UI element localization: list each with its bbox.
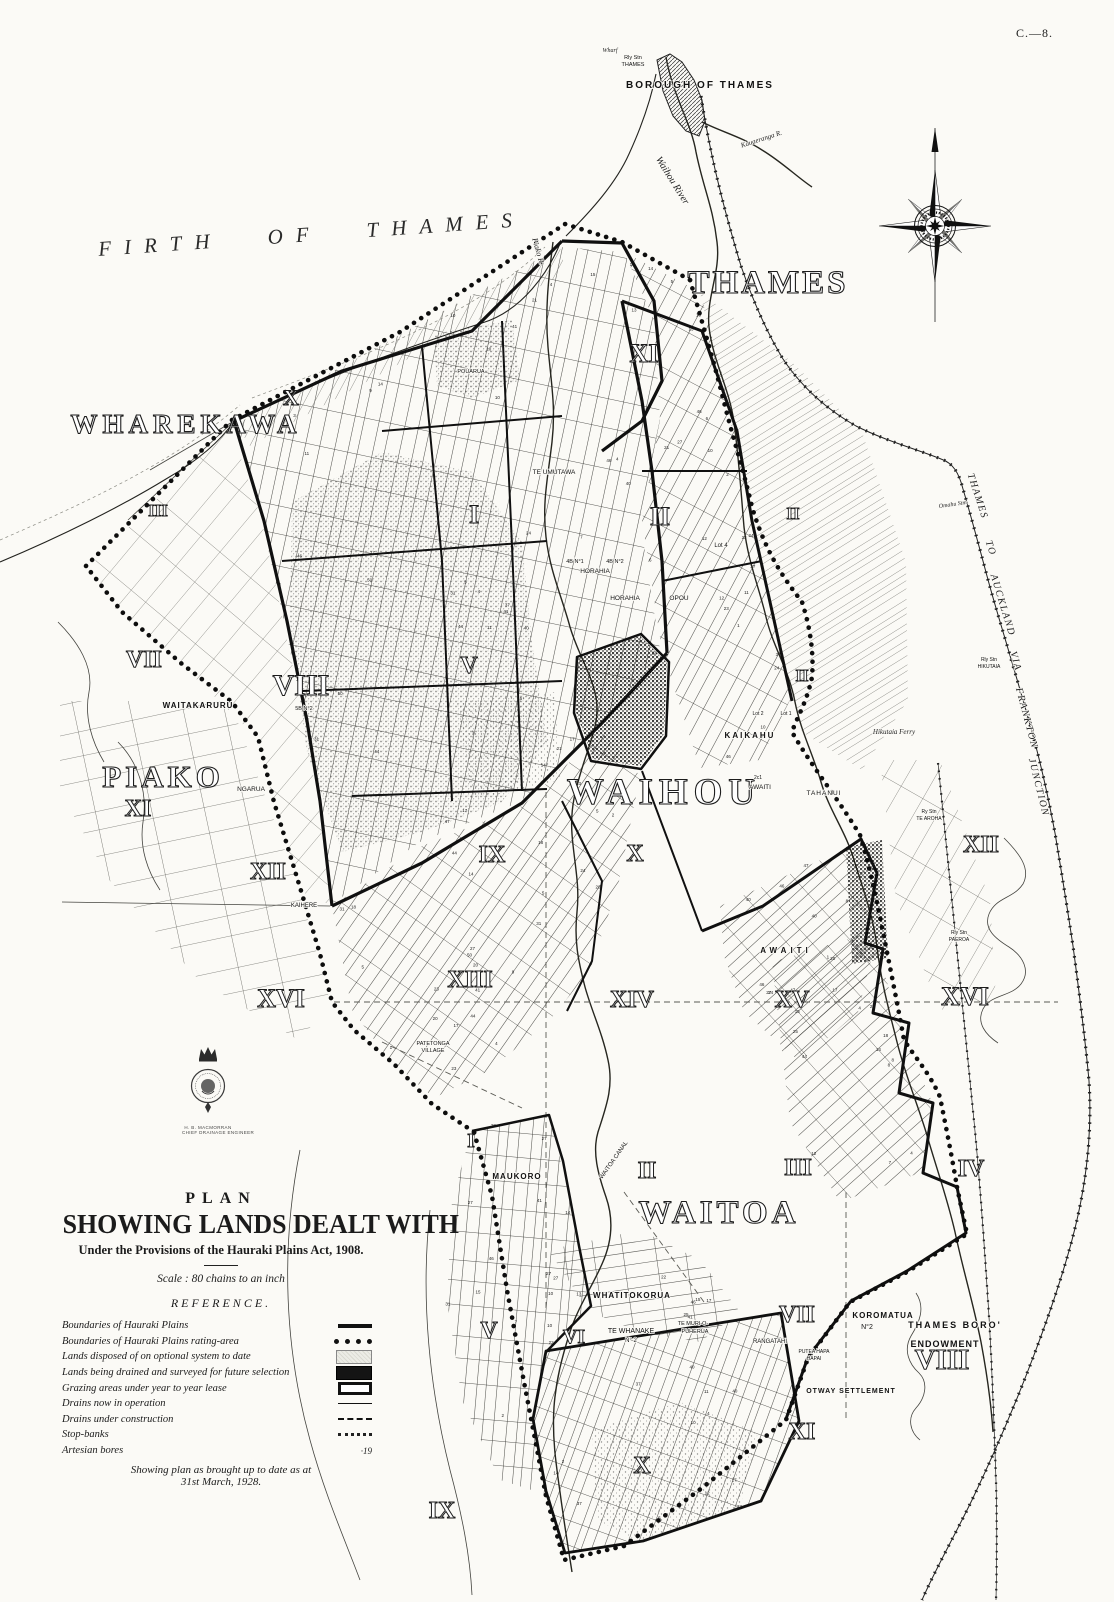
map-subtitle: Under the Provisions of the Hauraki Plai…	[56, 1243, 386, 1258]
parcel-number: 4	[910, 1150, 913, 1155]
parcel-number: 17	[832, 987, 838, 992]
parcel-line	[0, 845, 432, 942]
parcel-line	[0, 275, 192, 716]
map-label: II	[650, 502, 670, 531]
parcel-number: 7	[515, 1319, 518, 1324]
parcel-line	[640, 1020, 877, 1283]
parcel-line	[498, 1082, 537, 1526]
parcel-line	[622, 1037, 859, 1298]
map-label: III	[148, 501, 168, 520]
parcel-number: 11	[487, 625, 492, 630]
map-label: VIA	[1007, 650, 1023, 672]
map-label: X	[633, 1453, 651, 1479]
parcel-number: 4	[858, 1006, 861, 1011]
map-label: RANGATAHI	[753, 1339, 787, 1345]
map-label: Hikutaia Ferry	[872, 728, 916, 736]
official-seal: H. B. MACMORRAN CHIEF DRAINAGE ENGINEER	[182, 1044, 234, 1135]
parcel-line	[708, 934, 971, 1172]
parcel-number: 50	[467, 953, 473, 958]
drain-dashed	[382, 1042, 522, 1108]
map-label: KAIKAHU	[725, 731, 776, 740]
parcel-line	[640, 801, 870, 1006]
parcel-number: 4	[616, 456, 619, 461]
parcel-line	[509, 823, 806, 1247]
parcel-line	[0, 669, 272, 1039]
parcel-line	[699, 596, 1114, 891]
parcel-line	[879, 672, 1114, 827]
map-label: WAITOA	[639, 1195, 800, 1231]
parcel-line	[645, 233, 816, 1038]
parcel-number: 21	[557, 746, 563, 751]
parcel-number: 21	[532, 298, 538, 303]
legend-row: Stop-banks	[56, 1427, 386, 1443]
parcel-line	[714, 942, 977, 1180]
coastline	[566, 74, 656, 236]
parcel-line	[697, 245, 868, 1049]
parcel-number: 18	[883, 1033, 889, 1038]
map-label: XIII	[447, 967, 492, 993]
compass-rose-icon	[879, 128, 991, 322]
parcel-number: 27	[470, 946, 476, 951]
parcel-line	[706, 607, 1114, 903]
parcel-number: 31	[450, 591, 456, 596]
parcel-line	[813, 383, 1086, 896]
crown-seal-icon	[186, 1044, 230, 1120]
map-label: Kauaeranga R.	[739, 129, 783, 150]
parcel-number: 46	[606, 458, 612, 463]
parcel-line	[0, 286, 206, 727]
map-label: II	[786, 504, 800, 523]
map-label: VI	[563, 1326, 585, 1348]
parcel-number: 10	[708, 448, 714, 453]
legend-row: Drains under construction	[56, 1412, 386, 1428]
map-label: V	[480, 1318, 498, 1344]
title-divider	[204, 1265, 238, 1266]
parcel-number: 27	[553, 1275, 559, 1280]
map-label: XVI	[257, 984, 305, 1013]
legend-symbol-stopbank-line	[338, 1433, 372, 1436]
map-label: XVI	[941, 982, 989, 1011]
parcel-line	[428, 163, 904, 458]
map-label: Ry Stn	[921, 809, 936, 815]
map-label: X	[626, 841, 644, 867]
parcel-number: 12	[811, 1151, 817, 1156]
parcel-line	[927, 787, 1085, 1061]
map-label: Omahu Stm	[938, 500, 967, 510]
map-label: FIRTH OF THAMES	[96, 207, 525, 261]
parcel-number: 23	[451, 1066, 457, 1071]
map-label: THAMES	[965, 472, 990, 520]
parcel-number: 5	[542, 890, 545, 895]
legend-label: Boundaries of Hauraki Plains rating-area	[62, 1336, 239, 1347]
stipple-area	[434, 320, 520, 398]
map-label: VII	[779, 1302, 815, 1328]
map-scale: Scale : 80 chains to an inch	[56, 1273, 386, 1285]
title-block: PLAN SHOWING LANDS DEALT WITH Under the …	[56, 1190, 386, 1488]
legend-label: Grazing areas under year to year lease	[62, 1383, 227, 1394]
parcel-line	[754, 986, 1017, 1224]
parcel-line	[249, 132, 448, 507]
legend-label: Drains now in operation	[62, 1398, 166, 1409]
map-label: Lot 4	[714, 543, 728, 549]
parcel-number: 37	[577, 1501, 583, 1506]
parcel-line	[316, 1063, 762, 1101]
parcel-number: 46	[691, 1300, 697, 1305]
map-label: XI	[789, 1419, 816, 1445]
parcel-line	[733, 904, 963, 1112]
sheet-reference: C.—8.	[1016, 26, 1053, 41]
parcel-number: 13	[576, 1291, 582, 1296]
parcel-number: 14	[469, 871, 475, 876]
map-label: MAUKORO	[492, 1172, 541, 1181]
parcel-number: 46	[779, 883, 785, 888]
map-label: Wharf	[603, 47, 619, 54]
map-label: TE MURI-O-	[678, 1321, 709, 1327]
map-label: THAMES	[622, 62, 645, 68]
parcel-number: 11	[304, 451, 309, 456]
parcel-line	[514, 299, 990, 595]
parcel-line	[727, 1143, 764, 1401]
parcel-number: 41	[503, 609, 509, 614]
parcel-number: 17	[570, 736, 576, 741]
parcel-line	[683, 242, 854, 1045]
parcel-line	[692, 1148, 729, 1406]
parcel-number: 21	[664, 445, 670, 450]
parcel-line	[152, 82, 351, 454]
map-label: OPOU	[669, 595, 688, 602]
parcel-line	[455, 204, 931, 501]
parcel-number: 10	[691, 1420, 697, 1425]
map-label: 5B N°2	[295, 706, 313, 712]
parcel-line	[626, 785, 856, 993]
parcel-number: 18	[351, 904, 357, 909]
parcel-number: 2	[726, 472, 729, 477]
parcel-number: 17	[453, 1023, 459, 1028]
parcel-number: 24	[580, 868, 586, 873]
parcel-number: 20	[433, 1016, 439, 1021]
parcel-number: 22	[661, 1275, 667, 1280]
legend-label: Artesian bores	[62, 1445, 123, 1456]
parcel-line	[644, 508, 1114, 803]
parcel-number: 27	[677, 439, 683, 444]
map-label: PUHERUA	[682, 1329, 709, 1335]
legend-row: Boundaries of Hauraki Plains	[56, 1318, 386, 1334]
parcel-line	[0, 891, 442, 989]
footnote-line1: Showing plan as brought up to date as at	[56, 1464, 386, 1476]
parcel-line	[714, 330, 987, 844]
parcel-line	[647, 511, 1114, 809]
parcel-line	[408, 1075, 447, 1519]
parcel-number: 23	[434, 986, 440, 991]
parcel-number: 8	[892, 1058, 895, 1063]
parcel-line	[516, 1282, 776, 1318]
parcel-number: 11	[704, 1389, 709, 1394]
map-label: WHAREKAWA	[70, 409, 301, 439]
parcel-number: 47	[445, 819, 451, 824]
parcel-line	[0, 376, 312, 816]
map-label: HAPAI	[807, 1356, 822, 1362]
legend-symbol-dotted-boundary	[334, 1339, 372, 1344]
parcel-number: 40	[732, 1389, 738, 1394]
river-path	[545, 242, 611, 1572]
map-label: I	[467, 1130, 475, 1152]
parcel-number: 25	[793, 1029, 799, 1034]
map-label: VIII	[273, 669, 330, 702]
parcel-number: 46	[297, 554, 303, 559]
parcel-line	[787, 831, 1060, 988]
map-label: WHATITOKORUA	[593, 1291, 671, 1300]
map-label: ENDOWMENT	[911, 1339, 980, 1349]
map-label: HORAHIA	[580, 568, 610, 575]
parcel-line	[549, 1087, 588, 1531]
parcel-lines	[725, 670, 1114, 1092]
parcel-line	[771, 1004, 1034, 1243]
parcel-line	[660, 235, 831, 1042]
parcel-number: 40	[524, 625, 530, 630]
legend-symbol-dashed-line	[338, 1418, 372, 1420]
parcel-number: 41	[688, 1314, 694, 1319]
map-label: JUNCTION	[1026, 757, 1051, 818]
parcel-number: 12	[705, 1490, 711, 1495]
map-label: HORAHIA	[610, 595, 640, 602]
parcel-number: 46	[697, 409, 703, 414]
parcel-number: 5	[671, 279, 674, 284]
parcel-number: 27	[468, 1200, 474, 1205]
map-label: KOROMATUA	[852, 1311, 913, 1320]
map-label: Waihou River	[653, 155, 691, 207]
parcel-line	[534, 210, 705, 1013]
parcel-line	[415, 1541, 789, 1602]
legend-row: Artesian bores·19	[56, 1443, 386, 1459]
map-label: AWAITI	[760, 946, 812, 955]
parcel-line	[701, 869, 931, 1075]
parcel-number: 40	[812, 913, 818, 918]
parcel-number: 31	[340, 907, 346, 912]
parcel-number: 13	[631, 308, 637, 313]
stipple-area	[457, 692, 560, 800]
footnote-line2: 31st March, 1928.	[56, 1476, 386, 1488]
parcel-line	[0, 853, 773, 1022]
map-label: IV	[958, 1156, 985, 1182]
parcel-line	[498, 1151, 758, 1188]
parcel-number: 1	[827, 955, 830, 960]
parcel-number: 40	[689, 1365, 695, 1370]
map-label: Rly Stn	[981, 657, 997, 663]
parcel-line	[671, 1149, 708, 1411]
parcel-line	[533, 217, 1047, 489]
parcel-number: 2	[562, 1459, 565, 1464]
map-label: IX	[429, 1498, 456, 1524]
parcel-line	[430, 1075, 469, 1521]
parcel-line	[532, 328, 1008, 625]
parcel-number: 37	[636, 1381, 642, 1386]
parcel-number: 14	[648, 266, 654, 271]
parcel-line	[5, 1020, 469, 1121]
parcel-line	[509, 1232, 769, 1270]
legend-label: Stop-banks	[62, 1429, 109, 1440]
parcel-line	[598, 435, 1074, 730]
parcel-line	[681, 906, 944, 1141]
parcel-line	[684, 571, 1114, 869]
parcel-line	[62, 657, 161, 1121]
parcel-line	[708, 325, 981, 840]
seal-caption-title: CHIEF DRAINAGE ENGINEER	[182, 1130, 234, 1135]
parcel-line	[314, 1086, 760, 1127]
parcel-line	[0, 628, 307, 996]
parcel-number: 31	[536, 921, 542, 926]
legend-row: Boundaries of Hauraki Plains rating-area	[56, 1334, 386, 1350]
map-label: PUTEA HAPA	[798, 1349, 830, 1355]
parcel-line	[562, 375, 1038, 673]
parcel-line	[397, 1074, 436, 1518]
parcel-number: 31	[314, 736, 320, 741]
parcel-line	[748, 255, 919, 1060]
parcel-line	[488, 257, 964, 556]
parcel-number: 24	[526, 530, 532, 535]
parcel-line	[694, 320, 967, 832]
parcel-line	[6, 669, 105, 1132]
map-label: PIAKO	[102, 759, 224, 794]
map-label: 2c1	[754, 775, 762, 781]
misc-line	[62, 902, 330, 906]
parcel-number: 44	[374, 749, 380, 754]
parcel-line	[0, 317, 244, 760]
map-label: TAHANUI	[806, 790, 841, 797]
parcel-line	[633, 792, 863, 1001]
map-label: AWAITI	[749, 784, 771, 791]
parcel-number: 2	[612, 813, 615, 818]
parcel-line	[614, 458, 1090, 758]
map-label: TE AROHA	[916, 816, 942, 822]
map-label: 4B N°2	[606, 559, 624, 565]
map-label: N° 2	[625, 1338, 637, 1344]
parcel-line	[791, 372, 1064, 884]
parcel-line	[517, 830, 814, 1252]
map-label: VII	[126, 647, 162, 673]
map-label: BOROUGH OF THAMES	[626, 80, 774, 91]
boundary-heavy	[562, 801, 602, 1011]
parcel-number: 11	[744, 590, 749, 595]
parcel-line	[778, 1014, 1041, 1248]
parcel-line	[647, 881, 854, 1109]
map-label: TO	[983, 539, 998, 557]
parcel-number: 27	[766, 990, 772, 995]
parcel-number: 47	[803, 863, 809, 868]
parcel-line	[721, 890, 951, 1098]
legend-row: Grazing areas under year to year lease	[56, 1380, 386, 1396]
parcel-line	[0, 341, 272, 785]
legend-label: Lands disposed of on optional system to …	[62, 1351, 251, 1362]
map-label: XV	[775, 987, 810, 1013]
parcel-line	[750, 349, 1023, 863]
map-label: Piako R.	[530, 236, 547, 266]
parcel-line	[828, 1067, 1091, 1307]
map-label: XI	[630, 339, 659, 368]
parcel-number: 9	[369, 388, 372, 393]
parcel-line	[668, 861, 875, 1090]
boundary-heavy	[472, 1115, 591, 1352]
parcel-number: 44	[458, 624, 464, 629]
parcel-number: 12	[702, 536, 708, 541]
parcel-number: 1	[390, 1045, 393, 1050]
parcel-number: 10	[761, 724, 767, 729]
parcel-number: 1	[737, 623, 740, 628]
parcel-line	[776, 1310, 912, 1602]
legend-label: Drains under construction	[62, 1414, 173, 1425]
parcel-number: 2	[502, 1413, 505, 1418]
map-label: OTWAY SETTLEMENT	[806, 1388, 896, 1395]
parcel-line	[232, 122, 431, 498]
legend-row: Lands disposed of on optional system to …	[56, 1349, 386, 1365]
legend-label: Lands being drained and surveyed for fut…	[62, 1367, 289, 1378]
parcel-number: 46	[726, 754, 732, 759]
parcel-number: 40	[746, 897, 752, 902]
parcel-line	[800, 374, 1073, 891]
map-label: WAIHOU	[567, 772, 761, 813]
parcel-line	[510, 293, 986, 592]
parcel-line	[528, 322, 1004, 620]
parcel-number: 50	[367, 577, 373, 582]
parcel-line	[499, 280, 1013, 554]
parcel-number: 46	[759, 982, 765, 987]
parcel-number: 6	[649, 557, 652, 562]
parcel-line	[586, 739, 816, 949]
parcel-number: 10	[495, 395, 501, 400]
parcel-line	[760, 353, 1033, 868]
parcel-number: 4	[495, 1041, 498, 1046]
legend-symbol-thick-line	[338, 1324, 372, 1328]
parcel-number: 17	[462, 808, 468, 813]
parcel-line	[584, 221, 755, 1024]
parcel-number: 4	[550, 282, 553, 287]
map-label: TE WHANAKE	[608, 1328, 655, 1335]
parcel-line	[474, 1080, 513, 1525]
map-label: XII	[250, 859, 286, 885]
map-label: THAMES	[687, 265, 848, 301]
parcel-line	[773, 948, 1003, 1155]
parcel-line	[506, 204, 677, 1009]
legend-row: Drains now in operation	[56, 1396, 386, 1412]
parcel-number: 27	[546, 1271, 552, 1276]
map-label: FRANKTON	[1013, 686, 1040, 751]
parcel-line	[485, 1081, 524, 1525]
parcel-line	[264, 779, 689, 1078]
parcel-line	[440, 1187, 576, 1563]
legend-symbol-light-box	[336, 1350, 372, 1364]
parcel-line	[0, 947, 453, 1043]
parcel-number: 41	[537, 1198, 543, 1203]
parcel-number: 17	[732, 1477, 738, 1482]
parcel-line	[642, 1154, 679, 1413]
parcel-line	[547, 351, 1023, 650]
misc-line	[58, 622, 104, 762]
map-label: XIV	[610, 987, 655, 1013]
map-label: N°2	[861, 1323, 873, 1331]
parcel-line	[0, 825, 779, 996]
legend-symbol-outline-box	[338, 1382, 372, 1395]
map-label: Lot 1	[780, 711, 791, 717]
parcel-line	[0, 888, 765, 1061]
map-label: TE UMUTAWA	[533, 469, 576, 476]
map-label: Rly Stn	[951, 930, 967, 936]
parcel-number: 23	[724, 606, 730, 611]
river-path	[702, 122, 812, 187]
parcel-number: 10	[547, 1323, 553, 1328]
parcel-number: 24	[749, 533, 755, 538]
map-label: X	[283, 385, 299, 410]
parcel-line	[117, 646, 216, 1108]
parcel-line	[530, 1223, 904, 1362]
